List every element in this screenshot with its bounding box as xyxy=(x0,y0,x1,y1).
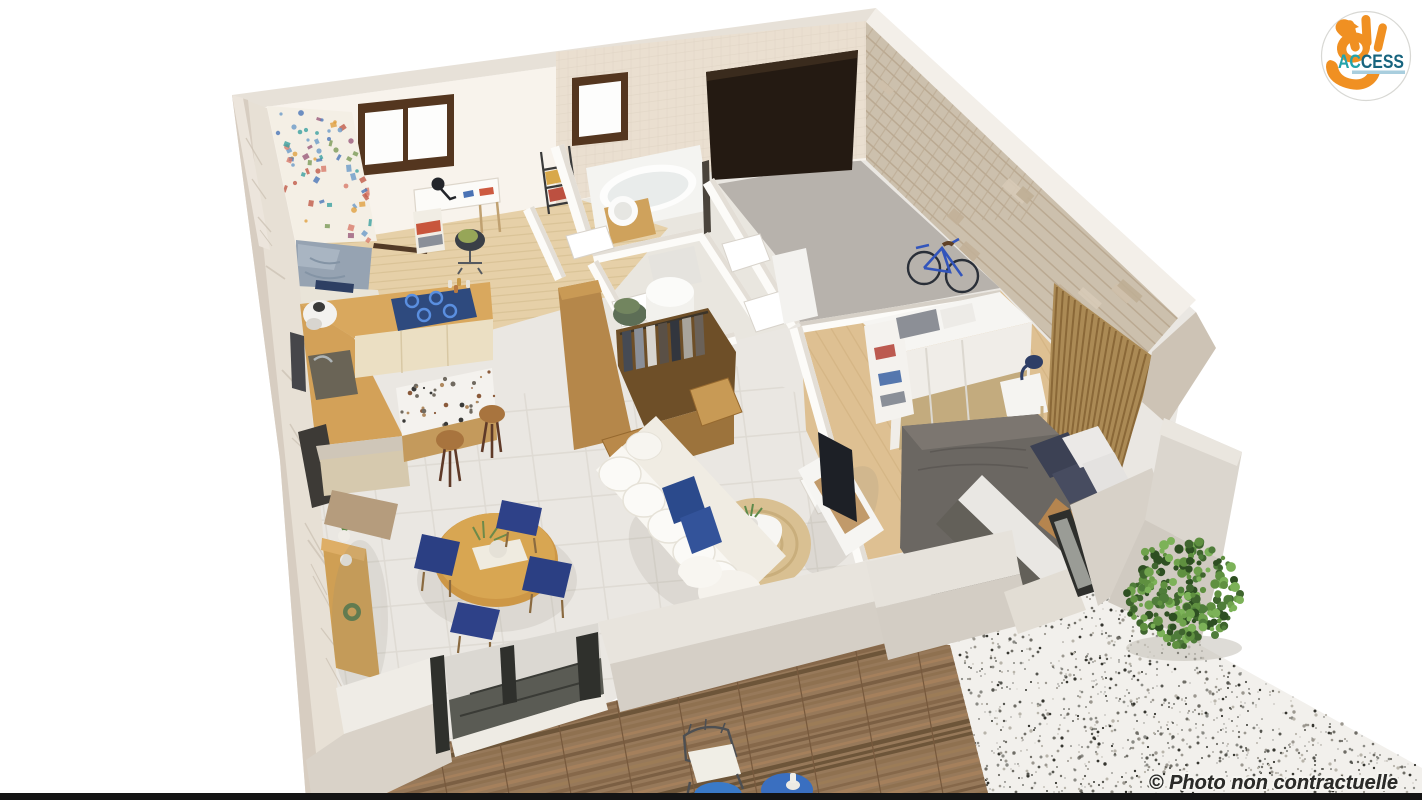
svg-text:© Photo non contractuelle: © Photo non contractuelle xyxy=(1149,772,1398,794)
svg-text:ACCESS: ACCESS xyxy=(1338,52,1404,73)
